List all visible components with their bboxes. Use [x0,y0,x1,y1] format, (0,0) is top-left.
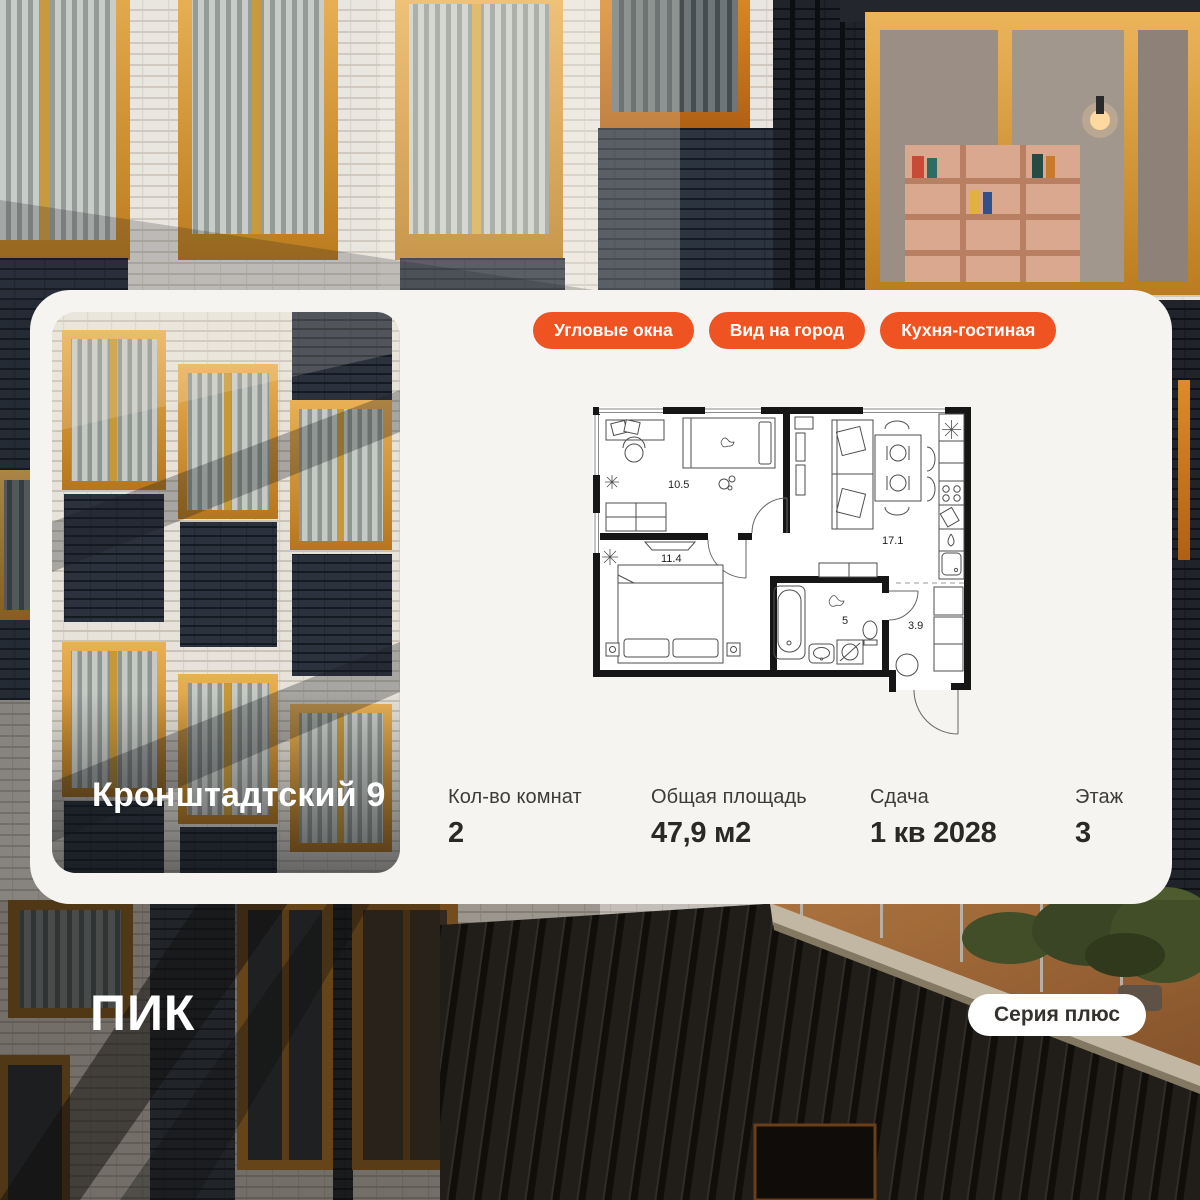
facade-bottom-band [0,887,1200,1200]
pik-logo[interactable]: ПИК [90,984,195,1042]
stat-area-value: 47,9 м2 [651,817,807,850]
badge-corner-windows[interactable]: Угловые окна [533,312,694,349]
room-label-bathroom: 5 [842,615,848,627]
stat-rooms-value: 2 [448,817,582,850]
stat-floor-label: Этаж [1075,786,1123,809]
stat-floor: Этаж 3 [1075,786,1123,850]
room-label-kitchen-living: 17.1 [882,535,903,547]
stat-rooms-label: Кол-во комнат [448,786,582,809]
stat-rooms: Кол-во комнат 2 [448,786,582,850]
stat-floor-value: 3 [1075,817,1123,850]
stat-area: Общая площадь 47,9 м2 [651,786,807,850]
stat-delivery: Сдача 1 кв 2028 [870,786,996,850]
stat-delivery-label: Сдача [870,786,996,809]
series-plus-button[interactable]: Серия плюс [968,994,1146,1036]
floor-plan: 10.5 11.4 17.1 5 3.9 [583,393,978,740]
stat-delivery-value: 1 кв 2028 [870,817,996,850]
badge-kitchen-living[interactable]: Кухня-гостиная [880,312,1056,349]
room-label-bedroom-2: 11.4 [661,553,682,565]
room-label-bedroom-1: 10.5 [668,479,689,491]
stat-area-label: Общая площадь [651,786,807,809]
listing-card[interactable]: Кронштадтский 9 Угловые окна Вид на горо… [30,290,1172,904]
badge-city-view[interactable]: Вид на город [709,312,866,349]
project-title: Кронштадтский 9 [92,776,386,815]
building-photo: Кронштадтский 9 [52,312,400,873]
feature-badges: Угловые окна Вид на город Кухня-гостиная [533,312,1056,349]
page: Кронштадтский 9 Угловые окна Вид на горо… [0,0,1200,1200]
room-label-hallway: 3.9 [908,620,923,632]
